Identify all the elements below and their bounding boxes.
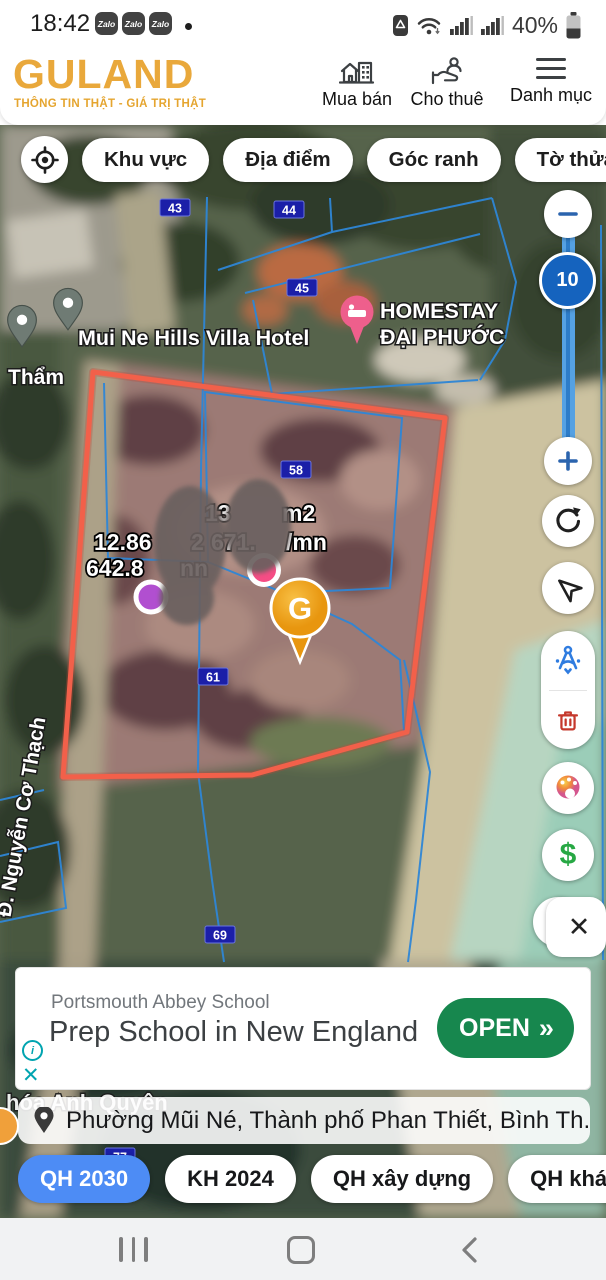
battery-icon <box>565 12 582 39</box>
svg-text:43: 43 <box>168 202 182 216</box>
signal-bars-icon <box>450 15 474 35</box>
chip-qh-khac[interactable]: QH khác <box>508 1155 606 1203</box>
zoom-level-knob[interactable]: 10 <box>539 252 596 309</box>
delete-button[interactable] <box>541 690 595 749</box>
my-direction-button[interactable] <box>542 562 594 614</box>
current-location-text: Phường Mũi Né, Thành phố Phan Thiết, Bìn… <box>66 1107 590 1135</box>
buildings-icon <box>339 56 375 86</box>
minus-icon <box>557 203 579 225</box>
parcel-badge: 58 <box>281 461 311 478</box>
parcel-badge: 69 <box>205 926 235 943</box>
nav-cho-thue[interactable]: Cho thuê <box>402 56 492 110</box>
recents-button[interactable] <box>119 1237 148 1262</box>
zalo-notification-icon: Zalo <box>122 12 145 35</box>
measure-button[interactable] <box>541 631 595 690</box>
navigation-arrow-icon <box>553 573 583 603</box>
phone-screen: 43 44 45 58 61 69 77 Mui Ne Hills Villa … <box>0 0 606 1280</box>
svg-text:G: G <box>288 591 312 626</box>
parcel-badge: 61 <box>198 668 228 685</box>
map-style-button[interactable] <box>542 762 594 814</box>
ad-close-button[interactable]: ✕ <box>546 897 606 957</box>
locate-me-button[interactable] <box>21 136 68 183</box>
zalo-notification-icon: Zalo <box>95 12 118 35</box>
svg-text:69: 69 <box>213 929 227 943</box>
back-chevron-icon <box>460 1236 478 1264</box>
palette-icon <box>553 773 583 803</box>
map-tools-pill <box>541 631 595 749</box>
svg-text:/mn: /mn <box>286 529 327 555</box>
double-chevron-icon: » <box>539 1013 552 1044</box>
compass-measure-icon <box>552 644 584 676</box>
wifi-icon <box>416 15 443 36</box>
ad-banner[interactable]: Portsmouth Abbey School Prep School in N… <box>15 967 591 1090</box>
map-pin-icon <box>32 1107 56 1135</box>
signal-bars-icon <box>481 15 505 35</box>
parcel-badge: 43 <box>160 199 190 216</box>
nav-danh-muc[interactable]: Danh mục <box>506 56 596 106</box>
ad-dismiss-icon[interactable]: ✕ <box>22 1066 40 1086</box>
hand-person-icon <box>429 56 465 86</box>
battery-percent: 40% <box>512 12 558 39</box>
homestay-label-line2: ĐẠI PHƯỚC <box>380 324 505 349</box>
svg-text:45: 45 <box>295 282 309 296</box>
logo-tagline: THÔNG TIN THẬT - GIÁ TRỊ THẬT <box>14 98 206 110</box>
clock: 18:42 <box>30 10 90 38</box>
tham-label: Thẩm <box>8 366 64 389</box>
trash-icon <box>553 705 583 735</box>
guland-logo[interactable]: GULAND <box>13 52 194 96</box>
zoom-out-button[interactable] <box>544 190 592 238</box>
parcel-badge: 45 <box>287 279 317 296</box>
location-search-bar[interactable]: Phường Mũi Né, Thành phố Phan Thiết, Bìn… <box>18 1097 590 1144</box>
price-layer-button[interactable]: $ <box>542 829 594 881</box>
zalo-notification-icon: Zalo <box>149 12 172 35</box>
layer-chip-row: QH 2030 KH 2024 QH xây dựng QH khác <box>18 1155 606 1203</box>
filter-chip-row: Khu vực Địa điểm Góc ranh Tờ thửa <box>21 136 606 183</box>
home-button[interactable] <box>287 1236 315 1264</box>
parcel-badge: 44 <box>274 201 304 218</box>
zoom-in-button[interactable] <box>544 437 592 485</box>
ad-headline[interactable]: Prep School in New England <box>49 1016 418 1049</box>
chip-kh-2024[interactable]: KH 2024 <box>165 1155 296 1203</box>
ad-info-icon[interactable]: i <box>22 1040 43 1061</box>
svg-text:12.86: 12.86 <box>94 529 152 555</box>
android-nav-bar <box>0 1218 606 1280</box>
dollar-icon: $ <box>560 838 577 872</box>
menu-icon <box>535 56 567 82</box>
refresh-icon <box>553 506 583 536</box>
plus-icon <box>557 450 579 472</box>
close-icon: ✕ <box>568 912 591 943</box>
back-button[interactable] <box>460 1236 478 1264</box>
svg-text:58: 58 <box>289 464 303 478</box>
chip-to-thua[interactable]: Tờ thửa <box>515 138 606 182</box>
notification-dot-icon <box>185 23 192 30</box>
notification-badges: Zalo Zalo Zalo <box>95 12 172 35</box>
homestay-label-line1: HOMESTAY <box>380 299 498 323</box>
app-header: GULAND THÔNG TIN THẬT - GIÁ TRỊ THẬT Mua… <box>0 48 606 125</box>
chip-khu-vuc[interactable]: Khu vực <box>82 138 209 182</box>
svg-text:61: 61 <box>206 671 220 685</box>
chip-qh-xay-dung[interactable]: QH xây dựng <box>311 1155 493 1203</box>
svg-text:44: 44 <box>282 204 296 218</box>
ad-open-button[interactable]: OPEN » <box>437 998 574 1058</box>
status-bar: 18:42 Zalo Zalo Zalo <box>0 0 606 48</box>
hotel-label: Mui Ne Hills Villa Hotel <box>78 326 309 350</box>
zoom-slider-track[interactable] <box>562 212 575 464</box>
chip-dia-diem[interactable]: Địa điểm <box>223 138 352 182</box>
chip-goc-ranh[interactable]: Góc ranh <box>367 138 501 182</box>
crosshair-icon <box>31 146 59 174</box>
battery-saver-icon <box>392 14 409 37</box>
nav-mua-ban[interactable]: Mua bán <box>318 56 396 110</box>
svg-text:642.8: 642.8 <box>86 555 144 581</box>
ad-advertiser: Portsmouth Abbey School <box>51 992 270 1014</box>
chip-qh-2030[interactable]: QH 2030 <box>18 1155 150 1203</box>
refresh-button[interactable] <box>542 495 594 547</box>
